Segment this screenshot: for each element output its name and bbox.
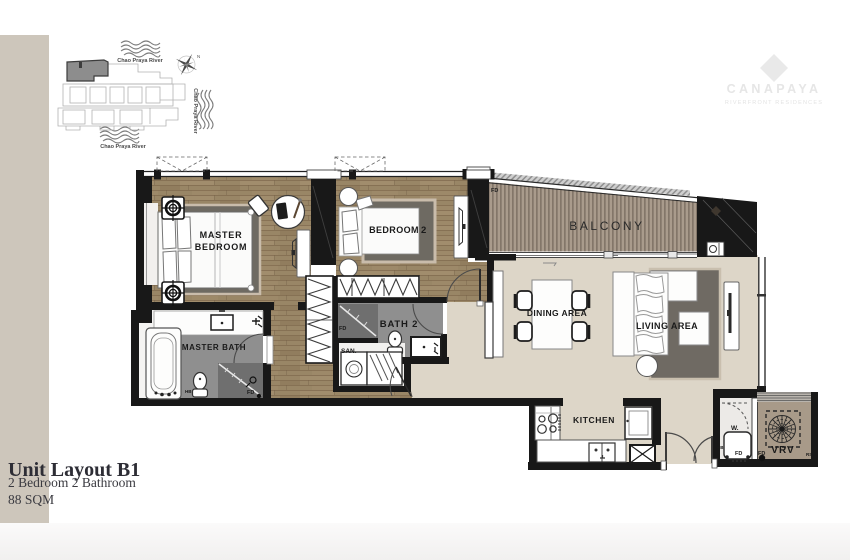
svg-text:FD: FD bbox=[758, 451, 765, 457]
svg-text:HB: HB bbox=[717, 445, 724, 450]
svg-text:FD: FD bbox=[735, 451, 742, 457]
svg-text:LIVING AREA: LIVING AREA bbox=[636, 321, 698, 331]
svg-text:88 SQM: 88 SQM bbox=[8, 492, 54, 507]
svg-text:RIVERFRONT RESIDENCES: RIVERFRONT RESIDENCES bbox=[725, 100, 823, 106]
svg-text:MASTER: MASTER bbox=[200, 230, 243, 240]
svg-text:VRV: VRV bbox=[771, 445, 794, 456]
svg-text:2 Bedroom 2 Bathroom: 2 Bedroom 2 Bathroom bbox=[8, 475, 136, 490]
svg-text:HB: HB bbox=[185, 389, 192, 394]
svg-text:Chao Praya River: Chao Praya River bbox=[117, 58, 163, 64]
svg-text:Chao Praya River: Chao Praya River bbox=[192, 88, 198, 134]
svg-text:MASTER BATH: MASTER BATH bbox=[182, 343, 246, 352]
svg-text:N: N bbox=[197, 54, 200, 59]
svg-text:BATH 2: BATH 2 bbox=[380, 319, 418, 330]
svg-text:DINING AREA: DINING AREA bbox=[527, 308, 587, 318]
svg-text:CANAPAYA: CANAPAYA bbox=[727, 82, 822, 96]
svg-text:Chao Praya River: Chao Praya River bbox=[100, 144, 146, 150]
svg-text:BEDROOM: BEDROOM bbox=[369, 225, 419, 235]
svg-text:KITCHEN: KITCHEN bbox=[573, 415, 615, 425]
svg-text:FD: FD bbox=[491, 188, 498, 194]
svg-text:BALCONY: BALCONY bbox=[569, 219, 645, 233]
svg-text:W.: W. bbox=[731, 425, 739, 432]
svg-text:2: 2 bbox=[421, 225, 426, 236]
svg-text:RS: RS bbox=[806, 452, 812, 457]
svg-text:FD: FD bbox=[247, 390, 254, 396]
svg-text:BEDROOM: BEDROOM bbox=[195, 242, 248, 252]
svg-text:SAN.: SAN. bbox=[341, 348, 357, 355]
svg-text:FD: FD bbox=[339, 326, 346, 332]
